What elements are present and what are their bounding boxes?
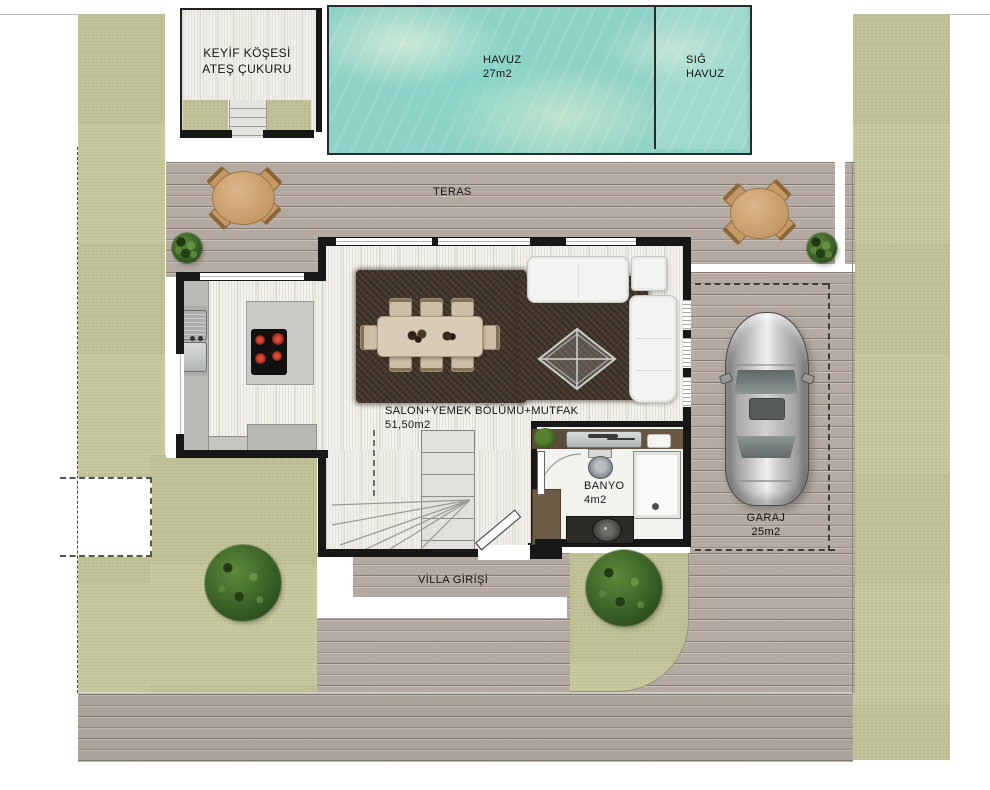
sofa-top	[527, 256, 629, 303]
label-fire-pit-line1: KEYİF KÖŞESİ	[180, 46, 314, 62]
label-fire-pit: KEYİF KÖŞESİ ATEŞ ÇUKURU	[180, 46, 314, 77]
label-shallow-pool: SIĞ HAVUZ	[686, 53, 724, 82]
entrance-walkway-v	[317, 557, 353, 599]
terrace-edge-strip	[835, 162, 845, 270]
car-rear-window	[736, 436, 796, 458]
car-sunroof	[749, 398, 785, 420]
stove	[251, 329, 287, 375]
fire-pit-wall-bottom-left	[180, 130, 232, 138]
parcel-dash-left	[77, 147, 78, 693]
label-bathroom-area: 4m2	[584, 493, 625, 507]
wall-entry-bottom	[318, 549, 484, 557]
label-pool-name: HAVUZ	[483, 53, 521, 67]
parcel-line-right	[852, 162, 853, 693]
shower-drain	[652, 503, 659, 510]
label-shallow-pool-line1: SIĞ	[686, 53, 724, 67]
parcel-line-top-right	[950, 14, 990, 15]
window-kitchen	[200, 273, 304, 280]
sofa-seat-divider	[636, 338, 672, 339]
label-garage-name: GARAJ	[740, 511, 792, 525]
label-pool: HAVUZ 27m2	[483, 53, 521, 82]
label-pool-area: 27m2	[483, 67, 521, 81]
label-salon-area: 51,50m2	[385, 418, 578, 432]
table-decor	[441, 330, 456, 342]
label-garage: GARAJ 25m2	[740, 511, 792, 540]
parcel-line-top-left	[0, 14, 79, 15]
dining-chair	[420, 298, 443, 317]
window-top-3	[566, 238, 636, 245]
terrace-driveway-divider	[690, 264, 855, 272]
car-windshield	[734, 370, 798, 394]
wash-basin	[592, 518, 622, 542]
table-decor	[405, 328, 429, 343]
road-paving	[78, 692, 853, 762]
garage-boundary-top	[695, 283, 828, 285]
label-fire-pit-line2: ATEŞ ÇUKURU	[180, 62, 314, 78]
dining-chair	[451, 298, 474, 317]
label-bathroom: BANYO 4m2	[584, 479, 625, 508]
window-top-1	[336, 238, 432, 245]
kitchen-faucet	[190, 336, 195, 341]
dining-chair	[482, 325, 500, 350]
window-right-1	[683, 300, 691, 330]
window-left	[176, 354, 184, 434]
kitchen-sink-bottom	[182, 342, 207, 372]
side-table	[631, 256, 667, 291]
garage-boundary-right	[828, 283, 830, 551]
stair-winders	[326, 428, 476, 554]
sofa-seat-divider	[636, 370, 672, 371]
lawn-strip-right	[853, 14, 950, 760]
coffee-table	[537, 327, 617, 391]
car	[725, 312, 809, 506]
label-terrace: TERAS	[433, 185, 472, 199]
fire-pit-lawn-left	[183, 100, 228, 130]
toilet	[588, 456, 613, 479]
label-entrance: VİLLA GİRİŞİ	[418, 573, 488, 587]
window-top-2	[438, 238, 530, 245]
wash-basin-drain	[604, 527, 607, 530]
dining-chair	[389, 298, 412, 317]
burner	[255, 335, 265, 345]
dining-table	[377, 316, 483, 357]
wall-stair-left	[318, 450, 326, 557]
window-right-3	[683, 377, 691, 407]
towel	[647, 434, 671, 448]
vanity-faucet	[588, 434, 618, 438]
entrance-walkway-h	[317, 597, 567, 618]
burner	[255, 353, 266, 364]
patio-table	[212, 171, 275, 225]
window-right-2	[683, 338, 691, 368]
burner	[272, 351, 282, 361]
sofa-seat-divider	[578, 265, 579, 298]
sofa-right	[629, 295, 677, 403]
label-salon-name: SALON+YEMEK BÖLÜMÜ+MUTFAK	[385, 404, 578, 418]
car-trunk-line	[739, 480, 793, 482]
wall-corner-nub	[318, 237, 326, 281]
dining-chair	[360, 325, 378, 350]
label-shallow-pool-line2: HAVUZ	[686, 67, 724, 81]
car-hood-line	[733, 364, 799, 366]
fire-pit-wall-bottom-right	[263, 130, 314, 138]
villa-floor-plan: KEYİF KÖŞESİ ATEŞ ÇUKURU HAVUZ 27m2 SIĞ …	[0, 0, 990, 790]
garage-boundary-bottom	[695, 549, 835, 551]
wall-kitchen-bottom	[176, 450, 328, 458]
parcel-notch	[60, 477, 152, 557]
bathroom-door	[537, 451, 545, 495]
burner	[272, 333, 284, 345]
fire-pit-steps	[229, 100, 267, 138]
entrance-threshold	[478, 545, 530, 560]
pool-divider	[654, 7, 656, 149]
label-bathroom-name: BANYO	[584, 479, 625, 493]
bush	[172, 233, 202, 263]
patio-table	[730, 188, 789, 239]
tree	[586, 550, 662, 626]
bush	[807, 233, 837, 263]
fire-pit-lawn-right	[266, 100, 311, 130]
kitchen-sink-top	[182, 310, 207, 340]
label-garage-area: 25m2	[740, 525, 792, 539]
tree	[205, 545, 281, 621]
label-salon: SALON+YEMEK BÖLÜMÜ+MUTFAK 51,50m2	[385, 404, 578, 433]
